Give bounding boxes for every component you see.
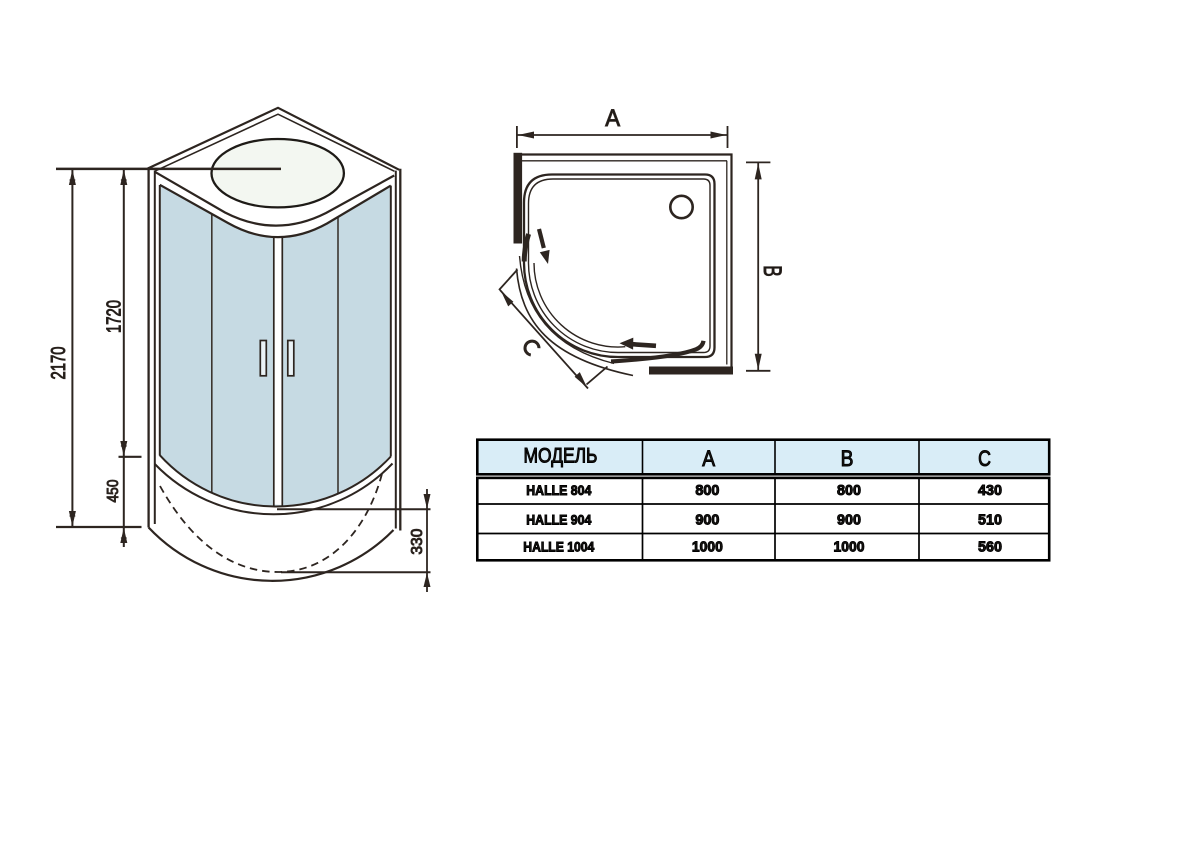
svg-text:1000: 1000	[692, 539, 723, 556]
svg-text:800: 800	[695, 482, 719, 499]
svg-text:HALLE 904: HALLE 904	[526, 512, 591, 528]
svg-text:МОДЕЛЬ: МОДЕЛЬ	[524, 444, 598, 467]
svg-text:800: 800	[837, 482, 861, 499]
svg-text:450: 450	[105, 479, 122, 502]
svg-text:A: A	[702, 446, 715, 471]
svg-text:510: 510	[978, 512, 1002, 529]
svg-text:900: 900	[695, 512, 719, 529]
svg-text:C: C	[978, 446, 991, 471]
svg-text:HALLE 804: HALLE 804	[526, 482, 591, 498]
svg-text:1000: 1000	[834, 539, 865, 556]
svg-text:B: B	[841, 446, 854, 471]
svg-text:560: 560	[978, 539, 1002, 556]
svg-text:HALLE 1004: HALLE 1004	[523, 539, 594, 555]
svg-text:2170: 2170	[48, 347, 70, 380]
svg-text:B: B	[758, 265, 786, 277]
svg-text:900: 900	[837, 512, 861, 529]
svg-text:430: 430	[978, 482, 1002, 499]
svg-text:330: 330	[409, 528, 426, 554]
svg-text:1720: 1720	[104, 300, 126, 333]
svg-text:A: A	[605, 105, 620, 132]
